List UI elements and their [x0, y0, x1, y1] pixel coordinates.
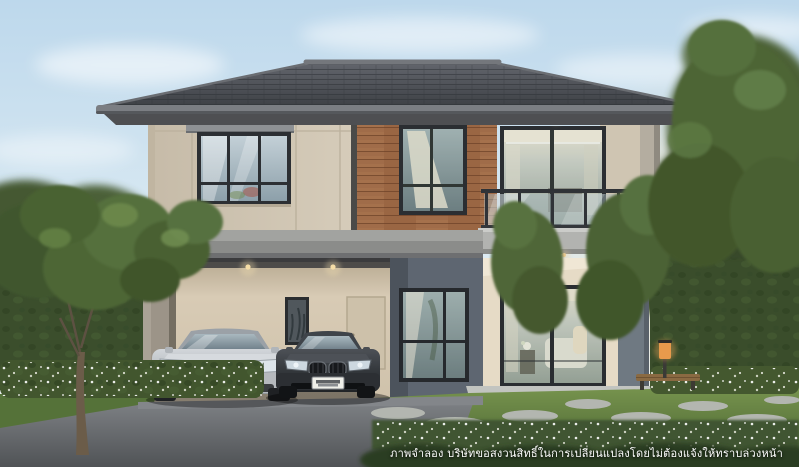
carport-downlight	[245, 264, 250, 269]
carport-downlight	[330, 264, 335, 269]
window-lower-middle	[399, 288, 469, 382]
window-upper-left	[186, 125, 294, 207]
render-image: ภาพจำลอง บริษัทขอสงวนสิทธิ์ในการเปลี่ยนแ…	[0, 0, 799, 467]
first-floor-gray-wall	[390, 258, 483, 398]
eave-soffit	[104, 114, 701, 125]
flower-bed-left	[0, 360, 264, 398]
scene-graphic	[0, 0, 799, 467]
window-upper-middle	[395, 117, 471, 215]
disclaimer-text: ภาพจำลอง บริษัทขอสงวนสิทธิ์ในการเปลี่ยนแ…	[390, 444, 783, 462]
